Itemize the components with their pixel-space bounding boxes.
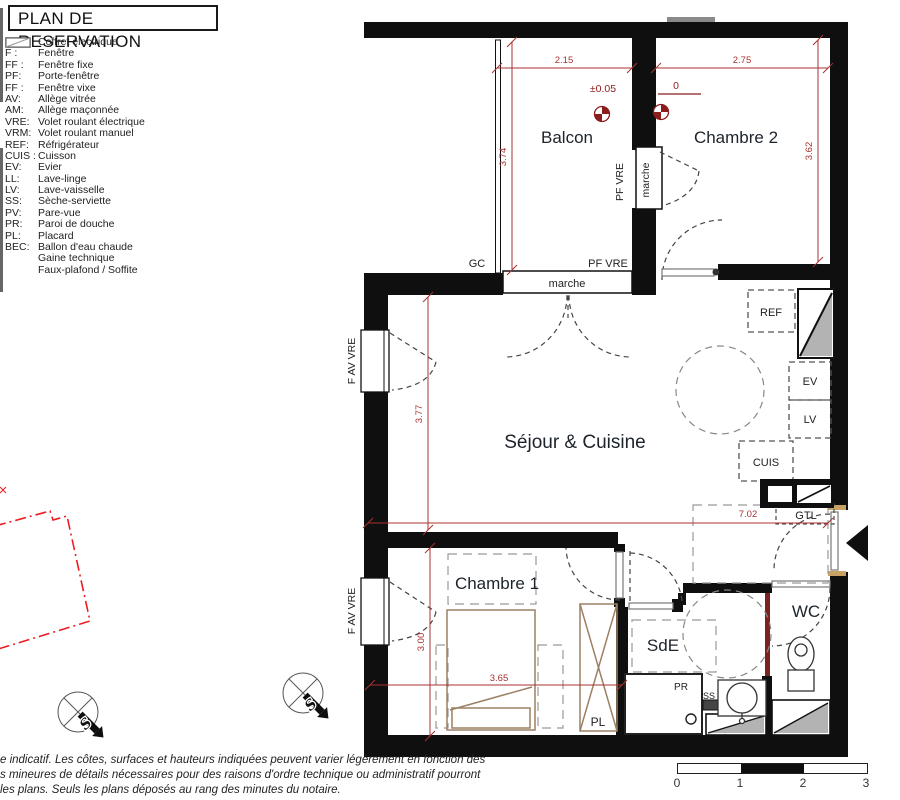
svg-text:0: 0 bbox=[673, 80, 679, 92]
room-label-chambre2: Chambre 2 bbox=[694, 128, 778, 147]
door-chambre1 bbox=[566, 548, 620, 600]
dim-3-77: 3.77 bbox=[414, 405, 425, 424]
dim-3-74: 3.74 bbox=[498, 148, 509, 167]
room-label-balcon: Balcon bbox=[541, 128, 593, 147]
compass-south-1: S bbox=[58, 692, 108, 742]
disclaimer-text: e indicatif. Les côtes, surfaces et haut… bbox=[0, 753, 460, 798]
window-chambre1 bbox=[361, 578, 389, 645]
label-cuis: CUIS bbox=[753, 457, 779, 469]
window-swing-chambre1 bbox=[390, 582, 436, 641]
window-swing-sejour bbox=[390, 333, 436, 390]
turning-circle-sde bbox=[683, 590, 771, 678]
gaine-wc bbox=[772, 700, 830, 735]
wc-leaf bbox=[772, 581, 830, 587]
kitchen-counter bbox=[760, 479, 834, 508]
sde-wc-partition bbox=[765, 593, 770, 676]
label-f-av-vre-2: F AV VRE bbox=[346, 588, 358, 635]
label-pf-vre-top: PF VRE bbox=[588, 258, 628, 270]
label-ss: SS bbox=[703, 691, 715, 701]
toilet bbox=[788, 637, 814, 691]
chambre1-leaf bbox=[616, 552, 623, 598]
label-gc: GC bbox=[469, 258, 486, 270]
label-pl: PL bbox=[591, 715, 606, 729]
compass-south-2: S bbox=[283, 673, 333, 723]
dim-7-02: 7.02 bbox=[739, 509, 758, 520]
nightstand-left bbox=[436, 645, 448, 728]
scale-bar bbox=[677, 763, 868, 774]
room-label-sejour: Séjour & Cuisine bbox=[504, 432, 646, 453]
gaine-kitchen bbox=[798, 289, 834, 358]
svg-text:±0.05: ±0.05 bbox=[590, 83, 616, 95]
gaine-sde bbox=[706, 714, 766, 735]
towel-dryer-ss bbox=[703, 700, 719, 710]
floor-plan-drawing: 2.15 2.75 3.74 3.62 3.77 3.00 7.02 3.65 … bbox=[0, 0, 900, 800]
scale-label-2: 2 bbox=[800, 776, 807, 790]
level-marker-chambre2: 0 bbox=[654, 80, 702, 120]
adjacent-unit-outline bbox=[0, 487, 90, 650]
window-sejour bbox=[361, 330, 389, 392]
floor-plan-page: PLAN DE RESERVATION GTL:Coffret électriq… bbox=[0, 0, 900, 800]
scale-label-0: 0 bbox=[674, 776, 681, 790]
entry-leaf bbox=[831, 512, 838, 570]
room-label-sde: SdE bbox=[647, 636, 679, 655]
nightstand-right bbox=[538, 645, 563, 728]
level-marker-balcon: ±0.05 bbox=[590, 83, 616, 122]
door-swings bbox=[390, 152, 830, 646]
turning-circle-sejour bbox=[676, 346, 764, 434]
dim-2-75: 2.75 bbox=[733, 55, 752, 66]
scale-label-1: 1 bbox=[737, 776, 744, 790]
label-gtl: GTL bbox=[795, 510, 816, 522]
room-label-chambre1: Chambre 1 bbox=[455, 574, 539, 593]
shower bbox=[625, 674, 702, 734]
label-pf-vre-side: PF VRE bbox=[614, 163, 626, 201]
door-balcony-left bbox=[505, 295, 567, 357]
chambre2-entry-leaf bbox=[662, 269, 714, 276]
label-ref: REF bbox=[760, 307, 782, 319]
dim-3-62: 3.62 bbox=[804, 142, 815, 161]
dim-3-65: 3.65 bbox=[490, 673, 509, 684]
label-ev: EV bbox=[803, 376, 818, 388]
label-lv: LV bbox=[804, 414, 817, 426]
wardrobe-pl bbox=[580, 604, 617, 731]
dim-2-15: 2.15 bbox=[555, 55, 574, 66]
dim-3-00: 3.00 bbox=[416, 633, 427, 652]
entrance-arrow bbox=[846, 525, 868, 561]
door-sde bbox=[630, 553, 682, 601]
label-marche-top: marche bbox=[549, 278, 586, 290]
door-balcony-right bbox=[569, 295, 631, 357]
room-label-wc: WC bbox=[792, 602, 820, 621]
label-pr: PR bbox=[674, 682, 688, 693]
label-marche-side: marche bbox=[640, 162, 652, 197]
sde-leaf bbox=[629, 603, 673, 609]
bed bbox=[447, 610, 535, 730]
label-f-av-vre-1: F AV VRE bbox=[346, 338, 358, 385]
door-balcon-chambre2 bbox=[660, 152, 699, 171]
door-entry bbox=[774, 514, 830, 570]
entry-jamb-bottom bbox=[828, 571, 846, 576]
scale-label-3: 3 bbox=[863, 776, 870, 790]
